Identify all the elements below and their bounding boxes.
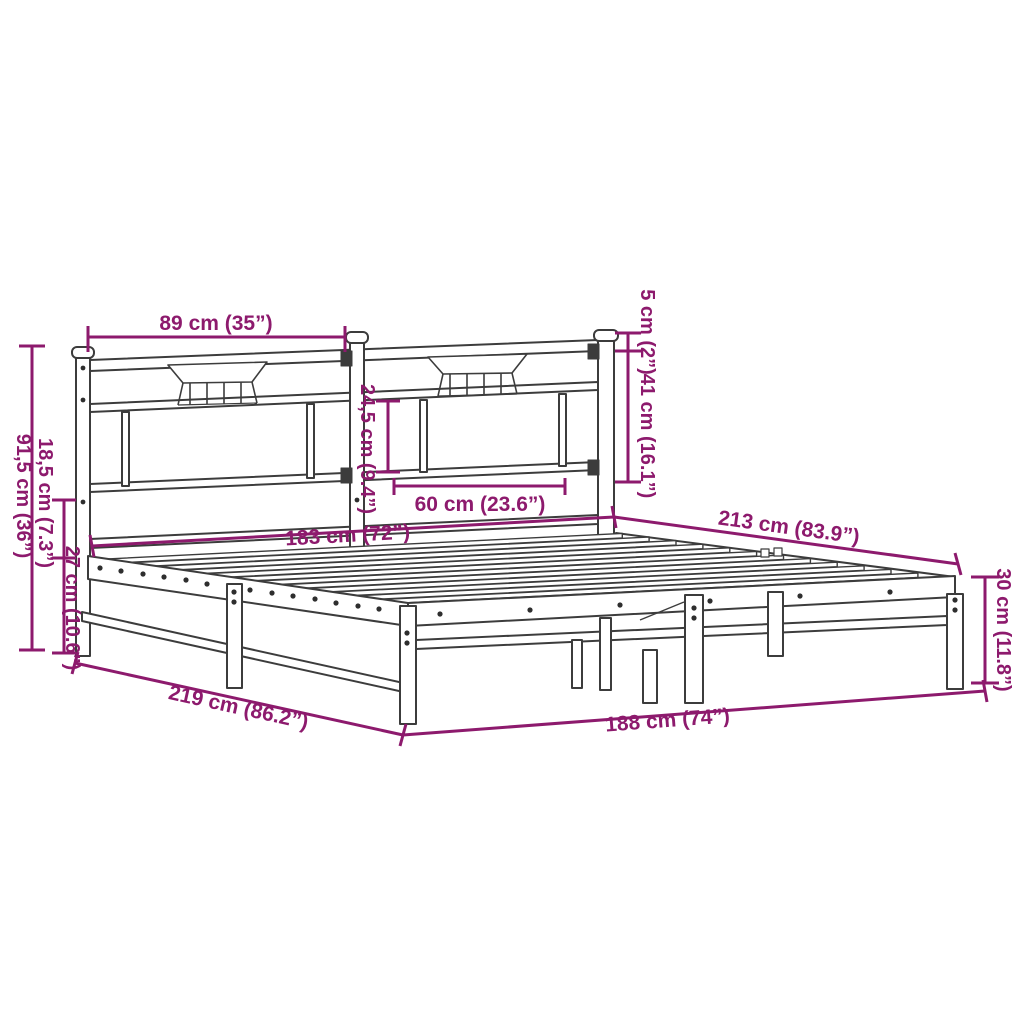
headboard-panel-bar — [122, 412, 129, 486]
post-cap — [346, 332, 368, 343]
headboard-mid-rail — [90, 382, 598, 412]
dim-outer-length-label: 219 cm (86.2”) — [166, 681, 310, 734]
dim-headboard-section-width: 89 cm (35”) — [88, 312, 345, 352]
dim-post-cap-height-label: 5 cm (2”) — [636, 289, 658, 375]
dim-headboard-section-width-label: 89 cm (35”) — [159, 312, 272, 335]
dim-base-height-label: 30 cm (11.8”) — [992, 568, 1014, 691]
post-cap — [594, 330, 618, 341]
center-rail-bracket — [761, 549, 769, 557]
dim-headboard-upper-height-label: 41 cm (16.1”) — [636, 374, 658, 499]
headboard-panel-bar — [559, 394, 566, 466]
dim-headboard-above-base-label: 18,5 cm (7.3”) — [34, 438, 56, 568]
headboard-panel-bar — [307, 404, 314, 478]
near-lower-stretcher — [82, 612, 408, 693]
dim-headboard-height-label: 91,5 cm (36”) — [12, 434, 34, 559]
bed-frame-dimension-diagram: 89 cm (35”) 5 cm (2”) 41 cm (16.1”) 24,5… — [0, 0, 1024, 1024]
center-rail-bracket — [774, 548, 782, 556]
dim-headboard-panel-height-label: 24,5 cm (9.4”) — [356, 384, 378, 514]
dim-post-cap-and-upper-height: 5 cm (2”) 41 cm (16.1”) — [615, 289, 658, 498]
headboard-panel-bar — [420, 400, 427, 472]
diagram-canvas: 89 cm (35”) 5 cm (2”) 41 cm (16.1”) 24,5… — [0, 0, 1024, 1024]
dim-base-height: 30 cm (11.8”) — [971, 568, 1014, 691]
dim-underbed-clearance-label: 27 cm (10.6”) — [61, 546, 83, 671]
leg-center-tall — [643, 650, 657, 703]
dim-outer-width-label: 188 cm (74”) — [604, 704, 730, 736]
leg-mid-far — [768, 592, 783, 656]
leg-center-small — [572, 640, 582, 688]
dim-headboard-panel-width: 60 cm (23.6”) — [394, 478, 565, 516]
leg-mid-foot — [685, 595, 703, 703]
leg-foot-near-corner — [400, 606, 416, 724]
dim-headboard-panel-width-label: 60 cm (23.6”) — [415, 493, 546, 516]
post-cap — [72, 347, 94, 358]
leg-center — [600, 618, 611, 690]
